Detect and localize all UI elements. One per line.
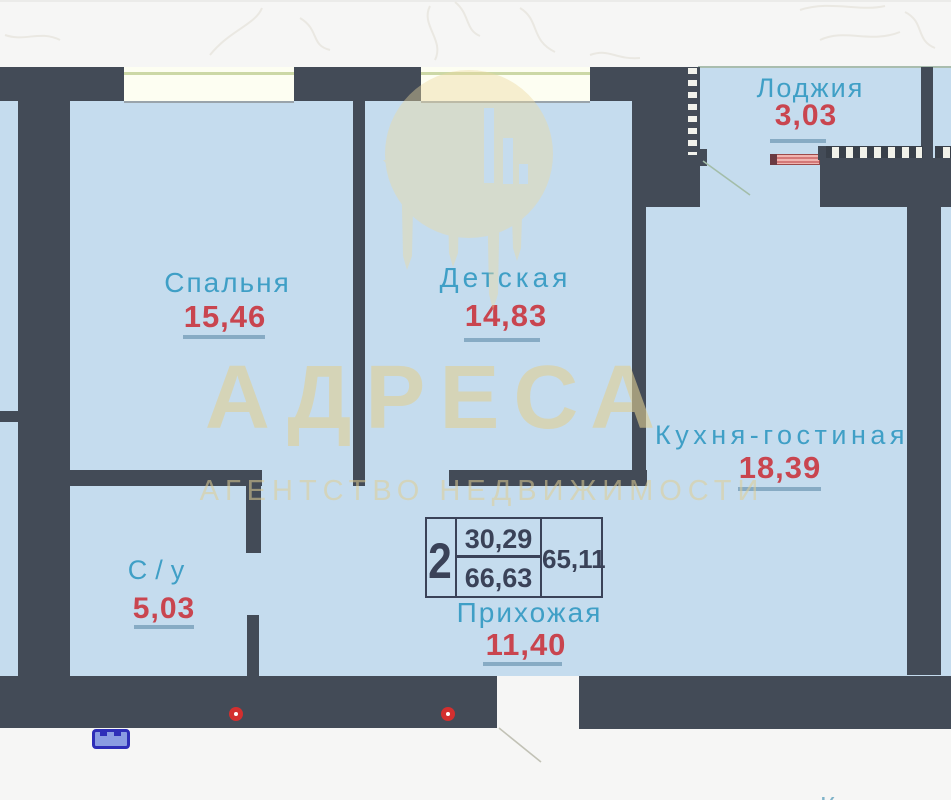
svg-text:АГЕНТСТВО НЕДВИЖИМОСТИ: АГЕНТСТВО НЕДВИЖИМОСТИ bbox=[200, 475, 765, 507]
svg-text:АДРЕСА: АДРЕСА bbox=[205, 348, 669, 448]
